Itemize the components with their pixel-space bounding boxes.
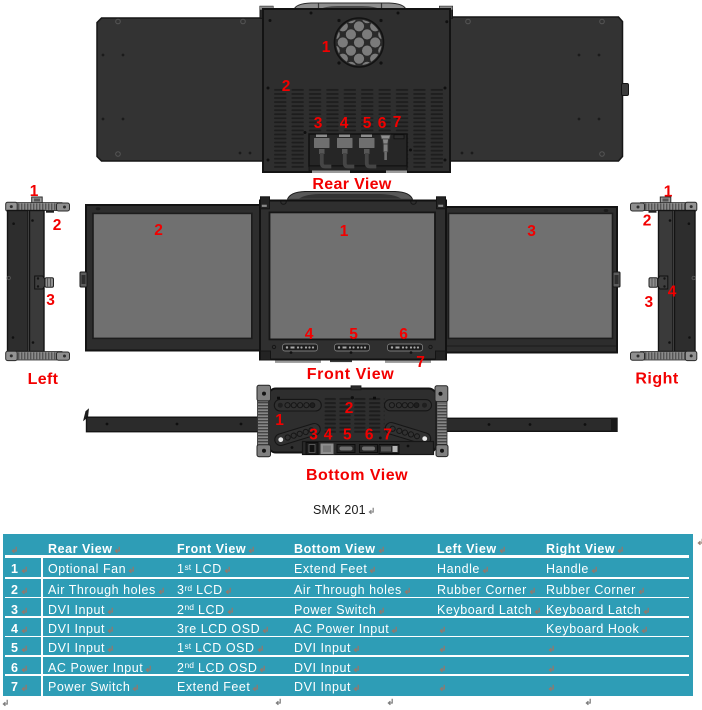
svg-text:4: 4 bbox=[324, 427, 333, 444]
svg-text:2: 2 bbox=[53, 217, 62, 234]
svg-text:7: 7 bbox=[416, 354, 425, 371]
svg-text:1: 1 bbox=[340, 223, 349, 240]
svg-text:Front View: Front View bbox=[307, 366, 395, 383]
svg-text:Bottom View: Bottom View bbox=[306, 467, 408, 484]
svg-text:7: 7 bbox=[383, 427, 392, 444]
svg-text:5: 5 bbox=[343, 427, 352, 444]
svg-text:3: 3 bbox=[527, 223, 536, 240]
svg-text:1: 1 bbox=[664, 184, 673, 201]
svg-text:1: 1 bbox=[322, 39, 331, 56]
svg-text:1: 1 bbox=[30, 183, 39, 200]
svg-text:5: 5 bbox=[363, 115, 372, 132]
svg-text:4: 4 bbox=[668, 284, 677, 301]
svg-text:Right: Right bbox=[635, 371, 679, 388]
svg-text:7: 7 bbox=[393, 114, 402, 131]
svg-text:Rear View: Rear View bbox=[312, 176, 392, 193]
svg-text:4: 4 bbox=[340, 115, 349, 132]
svg-text:5: 5 bbox=[349, 326, 358, 343]
svg-text:2: 2 bbox=[643, 213, 652, 230]
svg-text:6: 6 bbox=[378, 115, 387, 132]
svg-text:3: 3 bbox=[644, 294, 653, 311]
svg-text:2: 2 bbox=[282, 78, 291, 95]
svg-text:6: 6 bbox=[399, 326, 408, 343]
svg-text:3: 3 bbox=[46, 292, 55, 309]
svg-text:6: 6 bbox=[365, 427, 374, 444]
svg-text:3: 3 bbox=[314, 115, 323, 132]
svg-text:Left: Left bbox=[28, 371, 59, 388]
svg-text:3: 3 bbox=[309, 427, 318, 444]
svg-text:2: 2 bbox=[154, 222, 163, 239]
svg-text:4: 4 bbox=[305, 326, 314, 343]
svg-text:2: 2 bbox=[345, 400, 354, 417]
svg-text:1: 1 bbox=[275, 412, 284, 429]
